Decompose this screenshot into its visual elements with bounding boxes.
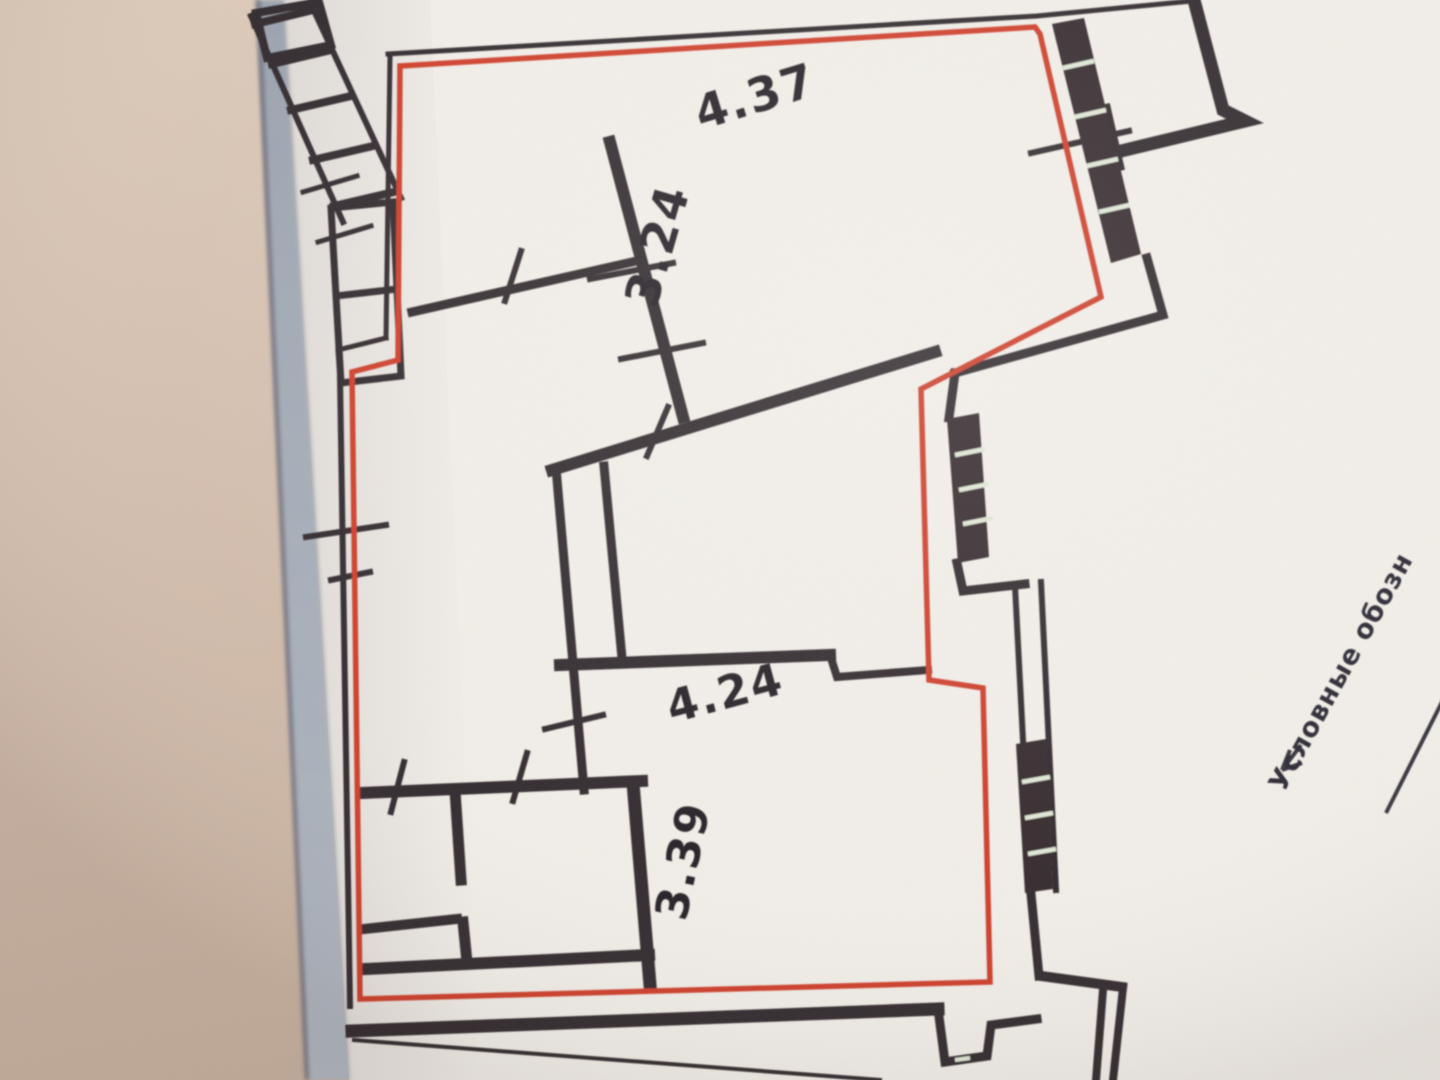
photo-grain	[0, 0, 1440, 1080]
floorplan-drawing: 4.37 3.24 4.24 3.39 Условные обозн	[0, 0, 1440, 1080]
floorplan-photo: 4.37 3.24 4.24 3.39 Условные обозн	[0, 0, 1440, 1080]
